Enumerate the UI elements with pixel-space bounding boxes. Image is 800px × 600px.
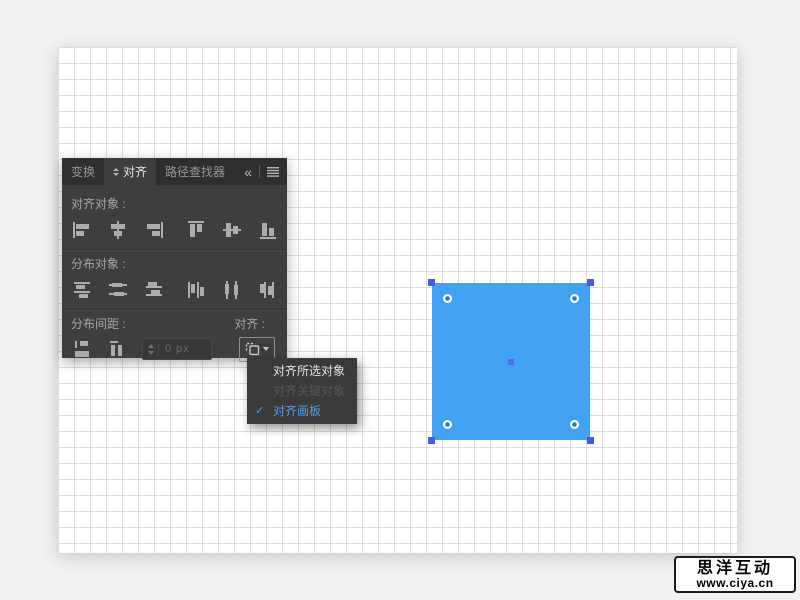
tab-transform-label: 变换 [71,163,95,180]
chevron-down-icon [263,347,269,351]
tabbar-divider [259,165,260,178]
application-window: 变换 对齐 路径查找器 « 对齐对象 : [0,0,800,600]
distribute-spacing-label: 分布间距 : [71,315,126,332]
horizontal-align-center-icon[interactable] [106,217,129,243]
section-divider [62,309,287,311]
align-to-dropdown-menu: 对齐所选对象 对齐关键对象 ✓ 对齐画板 [247,358,357,424]
vertical-align-center-icon[interactable] [220,217,243,243]
vertical-distribute-center-icon[interactable] [106,277,129,303]
vertical-align-top-icon[interactable] [184,217,207,243]
collapse-panel-icon[interactable]: « [244,165,252,179]
horizontal-align-left-icon[interactable] [70,217,93,243]
distribute-objects-label: 分布对象 : [71,255,279,272]
selection-handle-bottom-left[interactable] [428,437,435,444]
horizontal-distribute-left-icon[interactable] [184,277,207,303]
align-to-label: 对齐 : [234,315,265,332]
live-corner-widget-bottom-right[interactable] [570,420,579,429]
spacing-value: 0 px [159,343,190,355]
watermark-title: 思洋互动 [697,560,773,577]
menu-item-label: 对齐关键对象 [273,384,345,398]
horizontal-align-right-icon[interactable] [142,217,165,243]
menu-item-label: 对齐所选对象 [273,364,345,378]
tab-transform[interactable]: 变换 [62,158,104,185]
menu-item-align-to-selection[interactable]: 对齐所选对象 [247,361,357,381]
section-divider [62,249,287,251]
distribute-objects-row [70,275,279,305]
selection-handle-top-left[interactable] [428,279,435,286]
vertical-distribute-space-icon[interactable] [70,336,94,362]
stepper-arrows-icon[interactable] [143,342,159,357]
vertical-distribute-top-icon[interactable] [70,277,93,303]
align-panel: 变换 对齐 路径查找器 « 对齐对象 : [62,158,287,358]
watermark: 思洋互动 www.ciya.cn [674,556,796,593]
checkmark-icon: ✓ [255,401,264,421]
vertical-align-bottom-icon[interactable] [256,217,279,243]
tab-cycle-icon [113,168,119,176]
watermark-url: www.ciya.cn [696,577,773,590]
live-corner-widget-top-right[interactable] [570,294,579,303]
panel-menu-icon[interactable] [267,167,279,177]
menu-item-align-to-key-object: 对齐关键对象 [247,381,357,401]
object-center-point[interactable] [508,359,514,365]
align-objects-row [70,215,279,245]
tab-pathfinder-label: 路径查找器 [165,163,225,180]
selection-handle-top-right[interactable] [587,279,594,286]
live-corner-widget-top-left[interactable] [443,294,452,303]
spacing-value-stepper[interactable]: 0 px [142,338,212,360]
selected-blue-square[interactable] [432,283,590,440]
tab-align[interactable]: 对齐 [104,158,156,185]
selection-handle-bottom-right[interactable] [587,437,594,444]
tab-pathfinder[interactable]: 路径查找器 [156,158,234,185]
align-objects-label: 对齐对象 : [71,195,279,212]
menu-item-label: 对齐画板 [273,404,321,418]
panel-tab-bar: 变换 对齐 路径查找器 « [62,158,287,185]
live-corner-widget-bottom-left[interactable] [443,420,452,429]
horizontal-distribute-space-icon[interactable] [105,336,129,362]
horizontal-distribute-right-icon[interactable] [256,277,279,303]
tab-align-label: 对齐 [123,163,147,180]
vertical-distribute-bottom-icon[interactable] [142,277,165,303]
horizontal-distribute-center-icon[interactable] [220,277,243,303]
menu-item-align-to-artboard[interactable]: ✓ 对齐画板 [247,401,357,421]
align-to-artboard-icon [245,342,260,356]
